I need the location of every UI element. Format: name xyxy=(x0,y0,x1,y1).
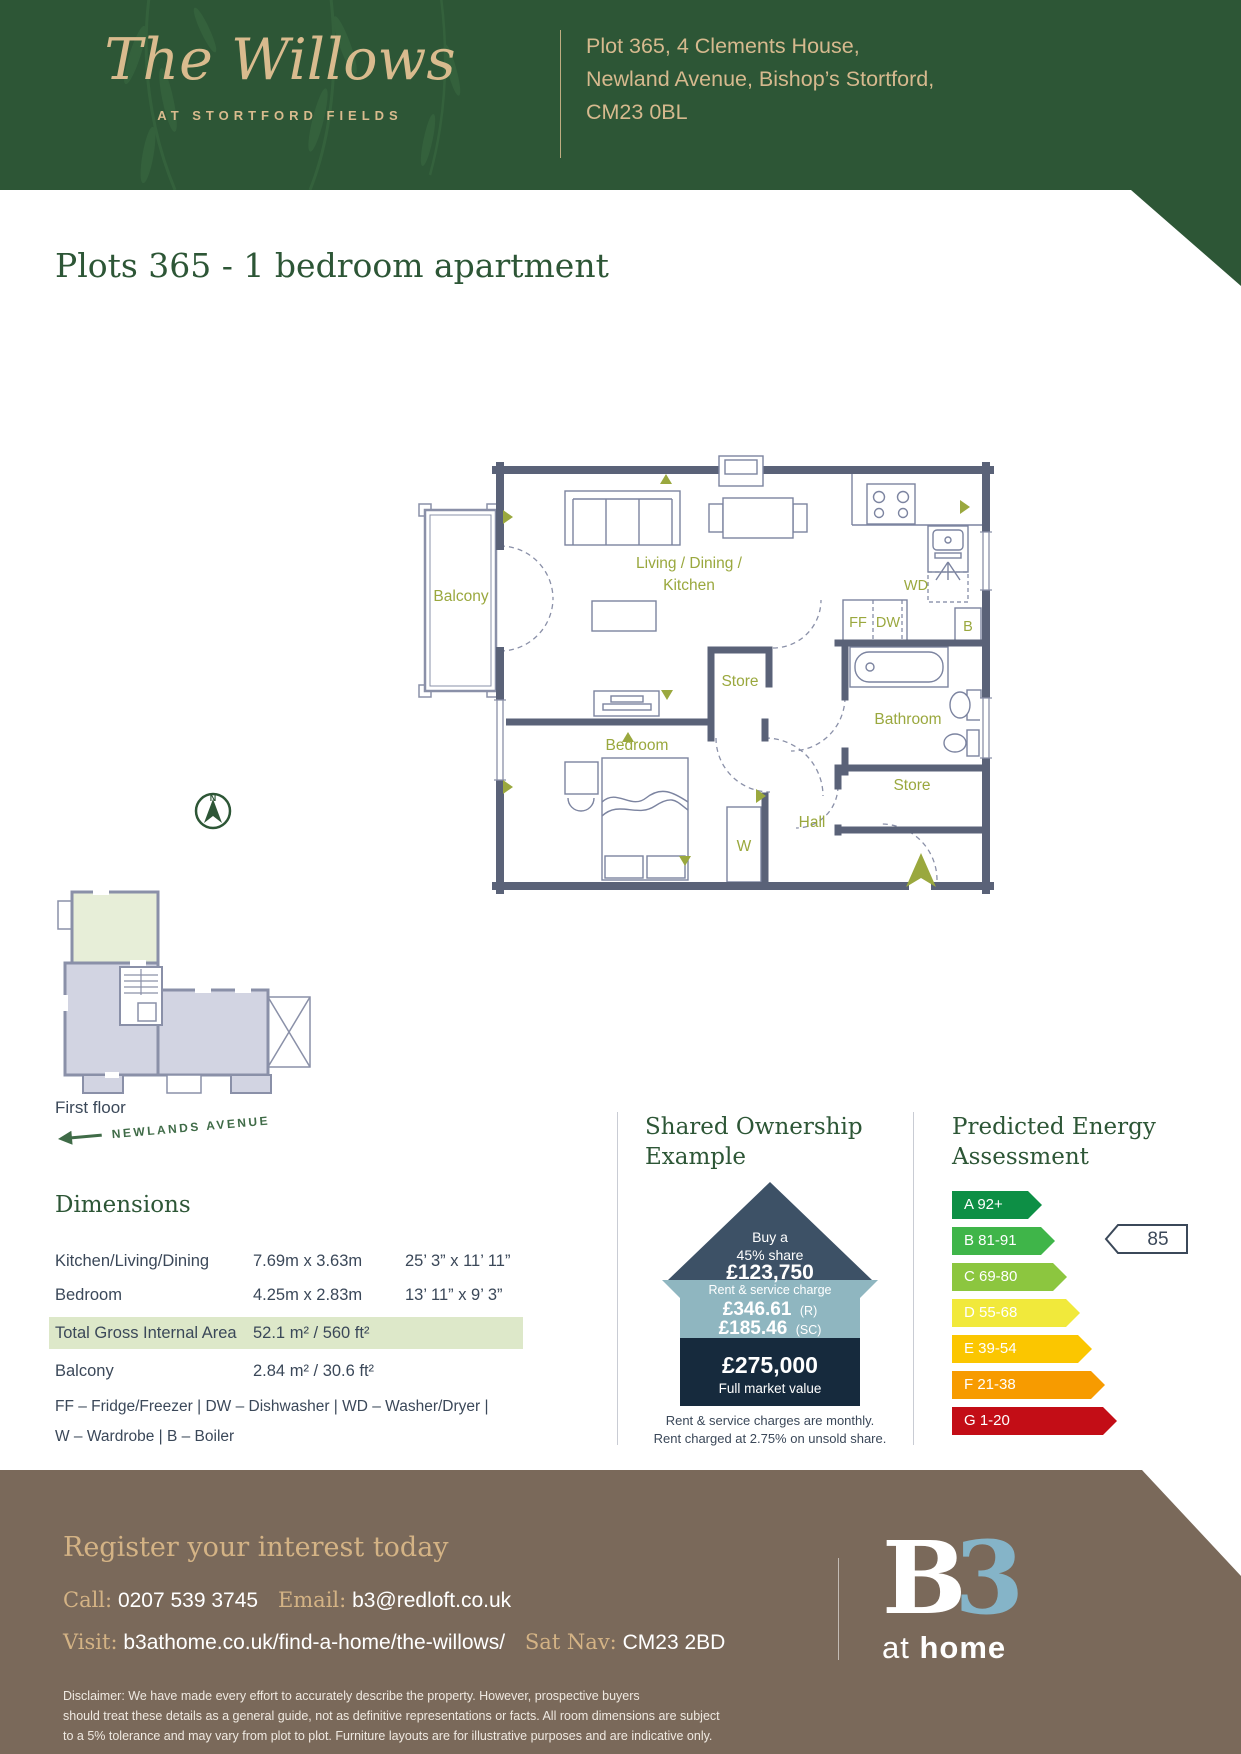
epc-band-d: D 55-68 xyxy=(952,1299,1080,1327)
total-area-row: Total Gross Internal Area 52.1 m² / 560 … xyxy=(49,1317,523,1349)
sofa xyxy=(565,491,680,545)
epc-band-a: A 92+ xyxy=(952,1191,1042,1219)
shared-ownership-heading: Shared Ownership Example xyxy=(645,1112,863,1172)
column-divider xyxy=(913,1112,914,1445)
logo-letter-b: B xyxy=(882,1519,967,1637)
plot-address: Plot 365, 4 Clements House, Newland Aven… xyxy=(586,30,934,129)
logo-at: at xyxy=(882,1630,910,1665)
first-floor-locator-plan: N xyxy=(45,785,325,1105)
building-outline xyxy=(58,889,310,1093)
imperial-size: 13’ 11” x 9’ 3” xyxy=(405,1286,517,1305)
dresser xyxy=(594,691,659,716)
full-market-label: Full market value xyxy=(719,1381,822,1396)
development-tagline: AT STORTFORD FIELDS xyxy=(60,108,500,123)
rent-suffix: (R) xyxy=(800,1304,817,1318)
footnote-line-2: Rent charged at 2.75% on unsold share. xyxy=(630,1430,910,1448)
heading-line-1: Shared Ownership xyxy=(645,1112,863,1142)
store-right-label: Store xyxy=(893,777,930,794)
room-name: Balcony xyxy=(55,1362,253,1381)
call-label: Call: xyxy=(63,1588,112,1612)
development-name: The Willows xyxy=(60,22,500,98)
roof-share-price: £123,750 xyxy=(726,1261,814,1284)
dw-label: DW xyxy=(876,615,900,631)
header-corner-shape xyxy=(1131,190,1241,286)
legend-line-2: W – Wardrobe | B – Boiler xyxy=(55,1422,489,1452)
wardrobe-label: W xyxy=(737,838,752,855)
phone-number[interactable]: 0207 539 3745 xyxy=(118,1589,258,1612)
kitchen-counter xyxy=(852,470,982,525)
imperial-size: 25’ 3” x 11’ 11” xyxy=(405,1252,517,1271)
full-market-value: £275,000 xyxy=(722,1352,818,1378)
balcony-area-value: 2.84 m² / 30.6 ft² xyxy=(253,1362,405,1381)
total-area-label: Total Gross Internal Area xyxy=(55,1324,253,1343)
kitchen-sink xyxy=(928,526,968,580)
coffee-table xyxy=(592,601,656,631)
bathroom-label: Bathroom xyxy=(874,711,941,728)
header-divider xyxy=(560,30,561,158)
email-address[interactable]: b3@redloft.co.uk xyxy=(352,1589,511,1612)
legend-line-1: FF – Fridge/Freezer | DW – Dishwasher | … xyxy=(55,1392,489,1422)
table-row: Bedroom 4.25m x 2.83m 13’ 11” x 9’ 3” xyxy=(55,1278,517,1312)
service-charge-suffix: (SC) xyxy=(796,1323,822,1337)
balcony-label: Balcony xyxy=(433,588,488,605)
street-direction: NEWLANDS AVENUE xyxy=(57,1113,270,1145)
living-label-line2: Kitchen xyxy=(663,577,715,594)
room-name: Kitchen/Living/Dining xyxy=(55,1252,253,1271)
basin xyxy=(950,690,981,720)
room-name: Bedroom xyxy=(55,1286,253,1305)
satnav-label: Sat Nav: xyxy=(525,1630,617,1654)
dimensions-table: Kitchen/Living/Dining 7.69m x 3.63m 25’ … xyxy=(55,1244,517,1388)
band-label: Rent & service charge xyxy=(709,1283,832,1297)
contact-line-1: Call: 0207 539 3745 Email: b3@redloft.co… xyxy=(63,1588,511,1613)
epc-band-b: B 81-91 xyxy=(952,1227,1055,1255)
table-row: Kitchen/Living/Dining 7.69m x 3.63m 25’ … xyxy=(55,1244,517,1278)
metric-size: 7.69m x 3.63m xyxy=(253,1252,405,1271)
service-charge-value: £185.46 xyxy=(719,1318,788,1339)
metric-size: 4.25m x 2.83m xyxy=(253,1286,405,1305)
bed xyxy=(602,758,688,880)
brochure-page: The Willows AT STORTFORD FIELDS Plot 365… xyxy=(0,0,1241,1754)
boiler-label: B xyxy=(963,619,973,635)
epc-band-g: G 1-20 xyxy=(952,1407,1117,1435)
footer-banner: Register your interest today Call: 0207 … xyxy=(0,1470,1241,1754)
disclaimer-line-3: to a 5% tolerance and may vary from plot… xyxy=(63,1726,720,1746)
logo-home: home xyxy=(919,1630,1006,1665)
epc-band-e: E 39-54 xyxy=(952,1335,1092,1363)
rent-value: £346.61 xyxy=(723,1299,792,1320)
heading-line-2: Assessment xyxy=(952,1142,1156,1172)
address-line-3: CM23 0BL xyxy=(586,96,934,129)
entrance-arrow-icon xyxy=(906,853,936,887)
development-logo: The Willows AT STORTFORD FIELDS xyxy=(60,22,500,123)
toilet xyxy=(944,730,979,756)
heading-line-2: Example xyxy=(645,1142,863,1172)
bath xyxy=(850,647,948,687)
balcony-row: Balcony 2.84 m² / 30.6 ft² xyxy=(55,1354,517,1388)
highlighted-plot xyxy=(72,892,158,963)
stairwell xyxy=(120,967,162,1025)
dimensions-heading: Dimensions xyxy=(55,1192,191,1218)
logo-digit-3: 3 xyxy=(955,1519,1025,1637)
footer-heading: Register your interest today xyxy=(63,1532,449,1563)
address-line-2: Newland Avenue, Bishop’s Stortford, xyxy=(586,63,934,96)
disclaimer: Disclaimer: We have made every effort to… xyxy=(63,1686,720,1746)
header-banner: The Willows AT STORTFORD FIELDS Plot 365… xyxy=(0,0,1241,190)
heading-line-1: Predicted Energy xyxy=(952,1112,1156,1142)
b3-at-home-logo: B3 at home xyxy=(882,1528,1024,1666)
epc-band-c: C 69-80 xyxy=(952,1263,1067,1291)
energy-heading: Predicted Energy Assessment xyxy=(952,1112,1156,1172)
bedroom-label: Bedroom xyxy=(606,737,669,754)
footer-divider xyxy=(838,1558,839,1660)
roof-text-line1: Buy a xyxy=(752,1229,788,1245)
floor-level-label: First floor xyxy=(55,1098,126,1118)
store-center-label: Store xyxy=(721,673,758,690)
dining-table xyxy=(709,498,807,538)
epc-band-f: F 21-38 xyxy=(952,1371,1105,1399)
page-title: Plots 365 - 1 bedroom apartment xyxy=(55,246,609,285)
footnote-line-1: Rent & service charges are monthly. xyxy=(630,1412,910,1430)
bedside-table xyxy=(565,762,598,811)
visit-label: Visit: xyxy=(63,1630,118,1654)
contact-line-2: Visit: b3athome.co.uk/find-a-home/the-wi… xyxy=(63,1630,725,1655)
email-label: Email: xyxy=(278,1588,346,1612)
column-divider xyxy=(617,1112,618,1445)
address-line-1: Plot 365, 4 Clements House, xyxy=(586,30,934,63)
floor-plan: Balcony Living / Dining / Kitchen WD FF … xyxy=(415,450,1005,905)
compass-icon: N xyxy=(196,793,230,828)
appliance-legend: FF – Fridge/Freezer | DW – Dishwasher | … xyxy=(55,1392,489,1452)
hall-label: Hall xyxy=(799,814,826,831)
street-arrow-icon xyxy=(57,1128,102,1146)
rent-footnote: Rent & service charges are monthly. Rent… xyxy=(630,1412,910,1448)
website-url[interactable]: b3athome.co.uk/find-a-home/the-willows/ xyxy=(123,1631,505,1654)
disclaimer-line-2: should treat these details as a general … xyxy=(63,1706,720,1726)
epc-rating-indicator: 85 xyxy=(1104,1222,1190,1256)
living-label-line1: Living / Dining / xyxy=(636,555,743,572)
street-name-label: NEWLANDS AVENUE xyxy=(111,1113,270,1141)
satnav-postcode: CM23 2BD xyxy=(623,1631,726,1654)
terrace-braced xyxy=(268,997,310,1067)
epc-rating-value: 85 xyxy=(1147,1229,1168,1250)
disclaimer-line-1: Disclaimer: We have made every effort to… xyxy=(63,1686,720,1706)
ff-label: FF xyxy=(849,615,867,631)
wd-label: WD xyxy=(904,578,928,594)
epc-chart: A 92+ B 81-91 C 69-80 D 55-68 E 39-54 F … xyxy=(952,1191,1117,1443)
shared-ownership-house-infographic: Buy a 45% share £123,750 Rent & service … xyxy=(648,1176,892,1408)
total-area-value: 52.1 m² / 560 ft² xyxy=(253,1324,405,1343)
